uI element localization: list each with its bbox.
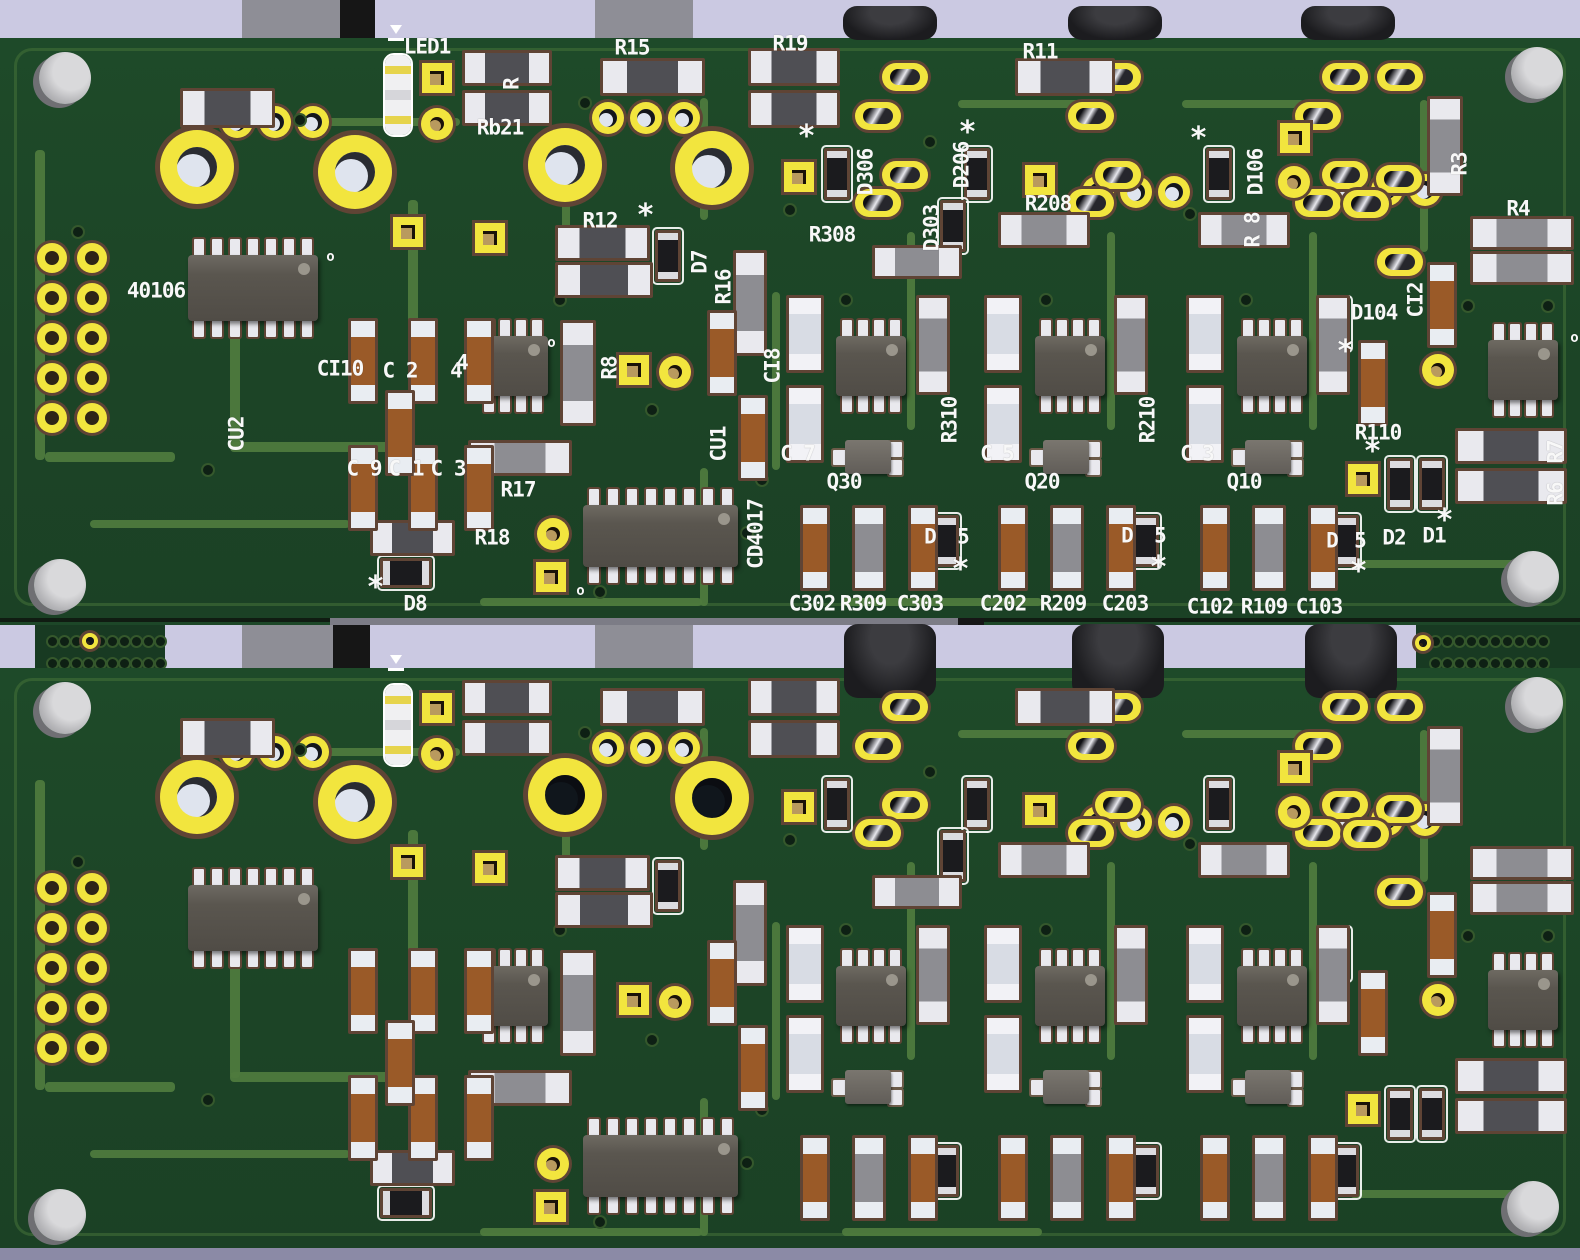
ic-pin xyxy=(1259,950,1269,967)
led-body xyxy=(385,685,411,765)
smd-resistor xyxy=(555,855,650,891)
round-pad xyxy=(1278,166,1310,198)
mounting-screw xyxy=(1507,1181,1559,1233)
copper-trace xyxy=(45,1082,175,1092)
diode-smd xyxy=(1387,1088,1413,1140)
ic-pin xyxy=(608,1196,618,1213)
silkscreen-label: C 1 xyxy=(389,459,424,480)
ic-pin xyxy=(1259,395,1269,412)
pad-center xyxy=(792,800,806,814)
ic-pin xyxy=(212,320,222,337)
via-hole xyxy=(1041,925,1051,935)
smd-resistor xyxy=(748,720,840,758)
silkscreen-label: o xyxy=(547,336,554,350)
silkscreen-label: R xyxy=(502,78,523,90)
silkscreen-label: C103 xyxy=(1296,597,1343,618)
silkscreen-label: R16 xyxy=(714,270,735,305)
pad-hole xyxy=(1351,196,1381,212)
header-pad xyxy=(77,403,107,433)
silkscreen-label: 5 xyxy=(1154,526,1166,547)
oval-pad xyxy=(1377,248,1423,276)
ic-pin xyxy=(266,869,276,886)
oval-pad xyxy=(855,732,901,760)
silkscreen-label: * xyxy=(958,118,975,148)
smd-resistor xyxy=(998,842,1090,878)
ic-pin xyxy=(1510,399,1520,416)
ic-pin xyxy=(302,950,312,967)
silkscreen-label: Q20 xyxy=(1025,472,1060,493)
ic-pin xyxy=(230,239,240,256)
ic-pin xyxy=(532,1025,542,1042)
ic-pin xyxy=(684,566,694,583)
silkscreen-label: * xyxy=(366,573,383,603)
ic-pin xyxy=(646,566,656,583)
ic-pin xyxy=(1494,1029,1504,1046)
silkscreen-label: Rb21 xyxy=(477,118,524,139)
via-hole xyxy=(73,227,83,237)
mounting-screw xyxy=(34,559,86,611)
ic-pin xyxy=(248,320,258,337)
smd-resistor xyxy=(872,875,962,909)
pin1-dot xyxy=(1287,344,1299,356)
via-hole xyxy=(841,295,851,305)
film-capacitor xyxy=(1427,262,1457,348)
diode-smd xyxy=(380,1188,432,1218)
pad-hole xyxy=(890,699,920,715)
ic-pin xyxy=(1275,320,1285,337)
oval-pad xyxy=(1095,791,1141,819)
ic-40106 xyxy=(188,255,318,321)
ic-pin xyxy=(703,1119,713,1136)
ic-pin xyxy=(1243,395,1253,412)
silkscreen-label: R209 xyxy=(1040,594,1087,615)
ic-pin xyxy=(1291,1025,1301,1042)
header-hole xyxy=(1539,637,1548,646)
ic-pin xyxy=(1259,1025,1269,1042)
header-hole xyxy=(156,659,165,668)
pad-hole xyxy=(85,961,99,975)
mounting-screw xyxy=(39,682,91,734)
silkscreen-label: C 2 xyxy=(383,361,418,382)
hole-center xyxy=(1165,183,1183,201)
ic-pin xyxy=(266,239,276,256)
ic-pin xyxy=(890,1025,900,1042)
header-hole xyxy=(1515,637,1524,646)
copper-trace xyxy=(230,1072,410,1082)
ic-pin xyxy=(1510,1029,1520,1046)
ic-pin xyxy=(874,950,884,967)
silkscreen-label: R109 xyxy=(1241,597,1288,618)
ic-pin xyxy=(1291,320,1301,337)
ic-pin xyxy=(500,395,510,412)
silkscreen-label: D8 xyxy=(403,594,426,615)
header-hole xyxy=(1455,637,1464,646)
via-hole xyxy=(73,857,83,867)
ic-pin xyxy=(684,1119,694,1136)
pad-center xyxy=(668,365,682,379)
copper-trace xyxy=(480,598,702,606)
copper-trace xyxy=(230,442,410,452)
ic-pin xyxy=(890,950,900,967)
header-hole xyxy=(1479,637,1488,646)
square-pad xyxy=(422,693,452,723)
smd-resistor xyxy=(872,245,962,279)
copper-trace xyxy=(958,100,1080,108)
ic-pin xyxy=(248,239,258,256)
silkscreen-label: o xyxy=(1570,331,1577,345)
square-pad xyxy=(1280,123,1310,153)
square-pad xyxy=(536,562,566,592)
copper-trace xyxy=(958,730,1080,738)
silkscreen-label: 5 xyxy=(1002,444,1014,465)
film-capacitor xyxy=(348,948,378,1034)
header-hole xyxy=(144,637,153,646)
via-hole xyxy=(595,587,605,597)
pad-hole xyxy=(45,371,59,385)
smd-resistor xyxy=(998,212,1090,248)
smd-resistor xyxy=(733,880,767,986)
film-capacitor xyxy=(1200,1135,1230,1221)
opamp-soic8 xyxy=(836,966,906,1026)
ic-pin xyxy=(194,320,204,337)
film-capacitor xyxy=(464,445,494,531)
via-hole xyxy=(647,1035,657,1045)
smd-resistor xyxy=(555,892,653,928)
oval-pad xyxy=(1376,795,1422,823)
round-pad xyxy=(1422,984,1454,1016)
film-capacitor xyxy=(998,505,1028,591)
smd-resistor xyxy=(1015,688,1115,726)
smd-resistor xyxy=(1198,842,1290,878)
silkscreen-label: o xyxy=(326,250,333,264)
plated-hole xyxy=(668,732,700,764)
hole-center xyxy=(637,109,655,127)
smd-resistor xyxy=(1470,881,1574,915)
pad-center xyxy=(430,747,444,761)
via-hole xyxy=(785,205,795,215)
film-capacitor xyxy=(707,310,737,396)
hole-center xyxy=(86,637,94,645)
pin1-dot xyxy=(528,344,540,356)
silkscreen-label: C xyxy=(780,444,792,465)
header-hole xyxy=(132,637,141,646)
pin1-dot xyxy=(718,513,730,525)
large-plated-pad xyxy=(318,135,392,209)
audio-jack-body xyxy=(1305,624,1397,698)
smd-resistor xyxy=(852,1135,886,1221)
opamp-soic8 xyxy=(1488,340,1558,400)
ceramic-capacitor xyxy=(984,1015,1022,1093)
header-pad xyxy=(37,993,67,1023)
silkscreen-label: R19 xyxy=(773,34,808,55)
pad-center xyxy=(401,225,415,239)
header-hole xyxy=(1491,659,1500,668)
audio-jack-body xyxy=(1068,6,1162,40)
via-hole xyxy=(203,1095,213,1105)
led-diode-symbol xyxy=(388,663,404,671)
header-hole xyxy=(120,637,129,646)
header-hole xyxy=(1539,659,1548,668)
ic-pin xyxy=(1243,1025,1253,1042)
square-pad xyxy=(393,217,423,247)
silkscreen-label: 5 xyxy=(1354,531,1366,552)
ceramic-capacitor xyxy=(786,295,824,373)
ic-pin xyxy=(608,566,618,583)
via-hole xyxy=(785,835,795,845)
silkscreen-label: R3 xyxy=(1450,152,1471,175)
header-pad xyxy=(37,283,67,313)
ic-pin xyxy=(703,489,713,506)
pad-hole xyxy=(1385,884,1415,900)
copper-trace xyxy=(772,922,780,1100)
ic-pin xyxy=(532,395,542,412)
silkscreen-label: * xyxy=(951,555,968,585)
header-hole xyxy=(1431,637,1440,646)
oval-pad xyxy=(882,693,928,721)
silkscreen-label: R210 xyxy=(1138,397,1159,444)
header-pad xyxy=(77,873,107,903)
oval-pad xyxy=(1068,102,1114,130)
copper-trace xyxy=(90,520,350,528)
ic-pin xyxy=(1542,399,1552,416)
silkscreen-label: CI8 xyxy=(763,349,784,384)
copper-trace xyxy=(480,1228,702,1236)
pad-hole xyxy=(85,371,99,385)
ic-pin xyxy=(1542,1029,1552,1046)
silkscreen-label: * xyxy=(797,122,814,152)
pad-hole xyxy=(1076,108,1106,124)
header-hole xyxy=(60,659,69,668)
pad-hole xyxy=(177,777,217,817)
header-pad xyxy=(37,323,67,353)
pad-center xyxy=(1356,472,1370,486)
square-pad xyxy=(475,223,505,253)
ic-pin xyxy=(302,320,312,337)
pad-hole xyxy=(85,291,99,305)
silkscreen-label: C102 xyxy=(1187,597,1234,618)
film-capacitor xyxy=(348,1075,378,1161)
pad-hole xyxy=(45,961,59,975)
smd-resistor xyxy=(1252,505,1286,591)
edge-connector-block xyxy=(595,625,693,668)
oval-pad xyxy=(882,791,928,819)
pad-hole xyxy=(45,291,59,305)
ic-pin xyxy=(516,1025,526,1042)
pad-hole xyxy=(545,775,585,815)
film-capacitor xyxy=(800,505,830,591)
diode-smd xyxy=(1419,1088,1445,1140)
ic-pin xyxy=(532,950,542,967)
film-capacitor xyxy=(464,948,494,1034)
header-hole xyxy=(60,637,69,646)
round-pad xyxy=(659,356,691,388)
diode-smd xyxy=(655,860,681,912)
silkscreen-label: * xyxy=(1435,506,1452,536)
copper-trace xyxy=(1350,560,1530,568)
ceramic-capacitor xyxy=(984,295,1022,373)
pcb-3d-viewport[interactable]: LED1RRb21R15R19R11D306*D206*D303R308R208… xyxy=(0,0,1580,1260)
silkscreen-label: R7 xyxy=(1546,440,1567,463)
oval-pad xyxy=(1377,63,1423,91)
ic-pin xyxy=(1057,395,1067,412)
ic-pin xyxy=(284,869,294,886)
pad-hole xyxy=(863,738,893,754)
silkscreen-label: C203 xyxy=(1102,594,1149,615)
header-hole xyxy=(108,637,117,646)
header-pad xyxy=(77,953,107,983)
header-hole xyxy=(1503,637,1512,646)
pad-hole xyxy=(1330,797,1360,813)
led-diode-symbol xyxy=(388,33,404,41)
silkscreen-label: CU1 xyxy=(709,427,730,462)
ic-pin xyxy=(858,1025,868,1042)
diode-smd xyxy=(1206,148,1232,200)
pad-hole xyxy=(1385,254,1415,270)
copper-trace xyxy=(230,960,240,1078)
board-edge-band xyxy=(0,1248,1580,1260)
silkscreen-label: R15 xyxy=(615,38,650,59)
via-hole xyxy=(647,405,657,415)
header-hole xyxy=(1479,659,1488,668)
transistor-sot23 xyxy=(1245,1070,1291,1104)
diode-smd xyxy=(1387,458,1413,510)
film-capacitor xyxy=(1358,340,1388,426)
pad-hole xyxy=(85,411,99,425)
diode-smd xyxy=(380,558,432,588)
ic-pin xyxy=(194,239,204,256)
opamp-soic8 xyxy=(1035,336,1105,396)
ic-pin xyxy=(1057,950,1067,967)
oval-pad xyxy=(855,102,901,130)
oval-pad xyxy=(1377,878,1423,906)
film-capacitor xyxy=(464,318,494,404)
plated-hole xyxy=(630,732,662,764)
header-pad xyxy=(37,913,67,943)
silkscreen-label: R310 xyxy=(940,397,961,444)
via-hole xyxy=(595,1217,605,1227)
ic-pin xyxy=(532,320,542,337)
ic-pin xyxy=(1057,1025,1067,1042)
smd-resistor xyxy=(462,720,552,756)
header-hole xyxy=(72,659,81,668)
smd-resistor xyxy=(1427,726,1463,826)
copper-trace xyxy=(45,452,175,462)
ic-pin xyxy=(1526,399,1536,416)
smd-resistor xyxy=(1316,925,1350,1025)
ic-pin xyxy=(589,1119,599,1136)
pin1-dot xyxy=(298,263,310,275)
ic-pin xyxy=(842,950,852,967)
board-edge-band xyxy=(0,625,35,668)
ceramic-capacitor xyxy=(1186,1015,1224,1093)
smd-resistor xyxy=(852,505,886,591)
pin1-dot xyxy=(886,344,898,356)
film-capacitor xyxy=(464,1075,494,1161)
opamp-soic8 xyxy=(836,336,906,396)
smd-resistor xyxy=(733,250,767,356)
pad-hole xyxy=(863,825,893,841)
header-hole xyxy=(1443,637,1452,646)
oval-pad xyxy=(1095,161,1141,189)
silkscreen-label: C 9 xyxy=(347,459,382,480)
pad-center xyxy=(668,995,682,1009)
plated-hole xyxy=(592,732,624,764)
large-plated-pad xyxy=(160,760,234,834)
via-hole xyxy=(841,925,851,935)
pad-center xyxy=(1287,175,1301,189)
pad-center xyxy=(1033,173,1047,187)
round-pad xyxy=(537,518,569,550)
pad-center xyxy=(546,527,560,541)
pad-center xyxy=(483,861,497,875)
pin1-dot xyxy=(718,1143,730,1155)
ic-pin xyxy=(516,320,526,337)
diode-smd xyxy=(1133,1145,1159,1197)
ic-pin xyxy=(1073,320,1083,337)
plated-hole xyxy=(1158,176,1190,208)
square-pad xyxy=(1280,753,1310,783)
square-pad xyxy=(784,162,814,192)
silkscreen-label: R208 xyxy=(1025,194,1072,215)
ic-pin xyxy=(842,320,852,337)
silkscreen-label: 3 xyxy=(1202,444,1214,465)
silkscreen-label: CU2 xyxy=(227,417,248,452)
oval-pad xyxy=(1343,190,1389,218)
pad-hole xyxy=(45,251,59,265)
transistor-sot23 xyxy=(1043,1070,1089,1104)
smd-resistor xyxy=(916,295,950,395)
ic-pin xyxy=(703,1196,713,1213)
smd-resistor xyxy=(560,320,596,426)
pad-hole xyxy=(1103,797,1133,813)
pad-hole xyxy=(1385,69,1415,85)
via-hole xyxy=(1543,301,1553,311)
via-hole xyxy=(1241,295,1251,305)
ic-pin xyxy=(284,239,294,256)
header-hole xyxy=(108,659,117,668)
silkscreen-label: C303 xyxy=(897,594,944,615)
pad-center xyxy=(483,231,497,245)
header-hole xyxy=(48,637,57,646)
ic-pin xyxy=(1291,950,1301,967)
pad-center xyxy=(430,117,444,131)
header-hole xyxy=(1467,659,1476,668)
pin1-dot xyxy=(886,974,898,986)
diode-smd xyxy=(964,778,990,830)
ic-pin xyxy=(684,489,694,506)
pad-center xyxy=(1356,1102,1370,1116)
ic-pin xyxy=(1510,954,1520,971)
ic-pin xyxy=(1542,324,1552,341)
round-pad xyxy=(1422,354,1454,386)
ic-pin xyxy=(684,1196,694,1213)
edge-connector-block xyxy=(242,625,333,668)
ic-pin xyxy=(500,1025,510,1042)
pad-hole xyxy=(335,782,375,822)
via-hole xyxy=(203,465,213,475)
ic-pin xyxy=(516,395,526,412)
copper-trace xyxy=(842,1228,1042,1236)
square-pad xyxy=(1348,1094,1378,1124)
ic-pin xyxy=(194,950,204,967)
pad-hole xyxy=(545,145,585,185)
via-hole xyxy=(1463,301,1473,311)
smd-resistor xyxy=(1470,216,1574,250)
ic-pin xyxy=(1041,950,1051,967)
via-hole xyxy=(925,767,935,777)
ic-pin xyxy=(284,320,294,337)
silkscreen-label: * xyxy=(636,201,653,231)
